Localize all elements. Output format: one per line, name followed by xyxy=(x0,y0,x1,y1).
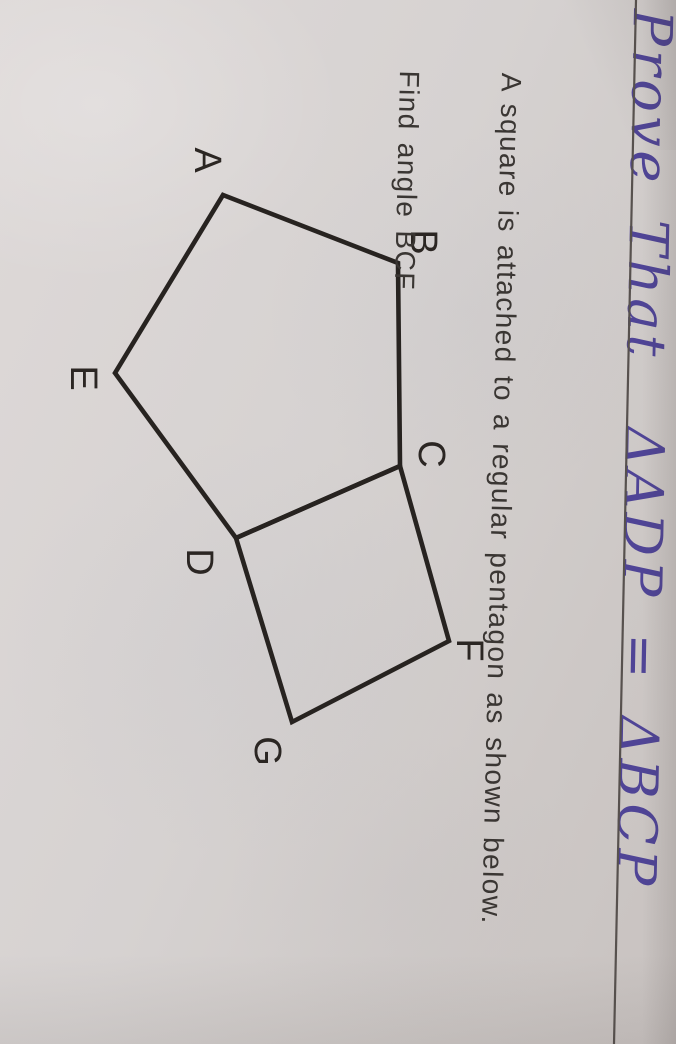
ruled-divider-line xyxy=(614,0,636,1044)
vertex-label-G: G xyxy=(246,736,288,766)
worksheet-page: Prove That ΔADP = ΔBCP ABCDEFG A square … xyxy=(0,0,676,1044)
vertex-label-E: E xyxy=(62,365,104,390)
vertex-label-D: D xyxy=(178,548,220,575)
problem-statement: A square is attached to a regular pentag… xyxy=(304,69,596,927)
problem-line-1: A square is attached to a regular pentag… xyxy=(474,73,528,926)
worksheet-photo: Prove That ΔADP = ΔBCP ABCDEFG A square … xyxy=(0,0,676,1044)
vertex-label-A: A xyxy=(186,147,228,173)
problem-line-2: Find angle BCF xyxy=(372,70,426,923)
